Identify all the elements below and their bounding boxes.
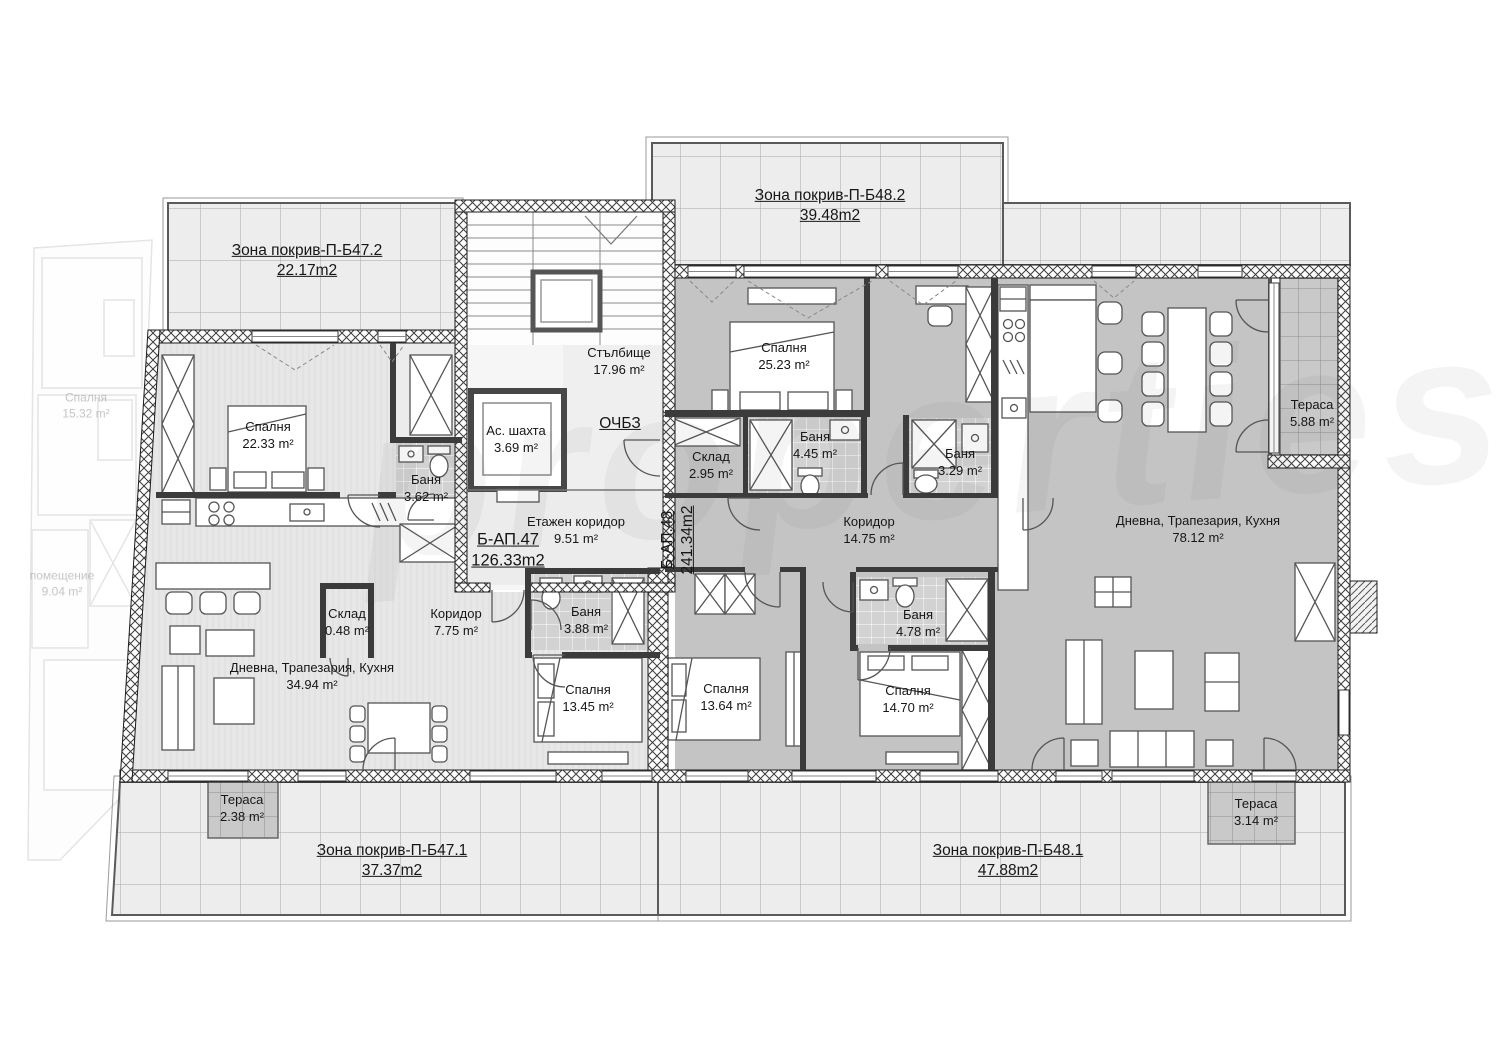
ap47-storage-label: Склад0.48 m² (325, 606, 369, 640)
ap48-living-label: Дневна, Трапезария, Кухня78.12 m² (1116, 513, 1280, 547)
floor-plan-page: properties Зона покрив-П-Б47.222.17m2 Зо… (0, 0, 1500, 1060)
ap48-bathroom-2-label: Баня3.29 m² (938, 446, 982, 480)
roof-zone-47-2-label: Зона покрив-П-Б47.222.17m2 (232, 241, 383, 281)
ap48-bedroom-3-label: Спалня14.70 m² (882, 683, 933, 717)
ap48-terrace-2-label: Тераса3.14 m² (1234, 796, 1278, 830)
ap47-bedroom-2-label: Спалня13.45 m² (562, 682, 613, 716)
ap48-bathroom-1-label: Баня4.45 m² (793, 429, 837, 463)
ap48-bedroom-2-label: Спалня13.64 m² (700, 681, 751, 715)
roof-zone-48-2 (646, 137, 1350, 270)
apartment-47-id-label: Б-АП.47126.33m2 (471, 530, 544, 573)
roof-zone-48-1-label: Зона покрив-П-Б48.147.88m2 (933, 841, 1084, 881)
ap48-storage-label: Склад2.95 m² (689, 449, 733, 483)
roof-zone-47-1-label: Зона покрив-П-Б47.137.37m2 (317, 841, 468, 881)
ap47-bathroom-1-label: Баня3.62 m² (404, 472, 448, 506)
ap47-bedroom-1-label: Спалня22.33 m² (242, 419, 293, 453)
ap47-terrace-label: Тераса2.38 m² (220, 792, 264, 826)
staircase-label: Стълбище17.96 m² (587, 345, 651, 379)
elevator-shaft-label: Ас. шахта3.69 m² (486, 423, 545, 457)
ghost-room-label: помещение9.04 m² (30, 568, 95, 599)
apartment-48-id-label: Б-АП.48241.34m2 (658, 506, 698, 575)
ap48-corridor-label: Коридор14.75 m² (843, 514, 894, 548)
staircase (467, 212, 663, 345)
ghost-bedroom-label: Спалня15.32 m² (62, 390, 109, 421)
ap48-bathroom-3-label: Баня4.78 m² (896, 607, 940, 641)
ap48-terrace-1-label: Тераса5.88 m² (1290, 397, 1334, 431)
ap47-corridor-label: Коридор7.75 m² (430, 606, 481, 640)
ap48-bedroom-1-label: Спалня25.23 m² (758, 340, 809, 374)
ochbz-label: ОЧБЗ (599, 414, 640, 434)
ap47-bathroom-2-label: Баня3.88 m² (564, 604, 608, 638)
ap47-living-label: Дневна, Трапезария, Кухня34.94 m² (230, 660, 394, 694)
roof-zone-48-2-label: Зона покрив-П-Б48.239.48m2 (755, 186, 906, 226)
